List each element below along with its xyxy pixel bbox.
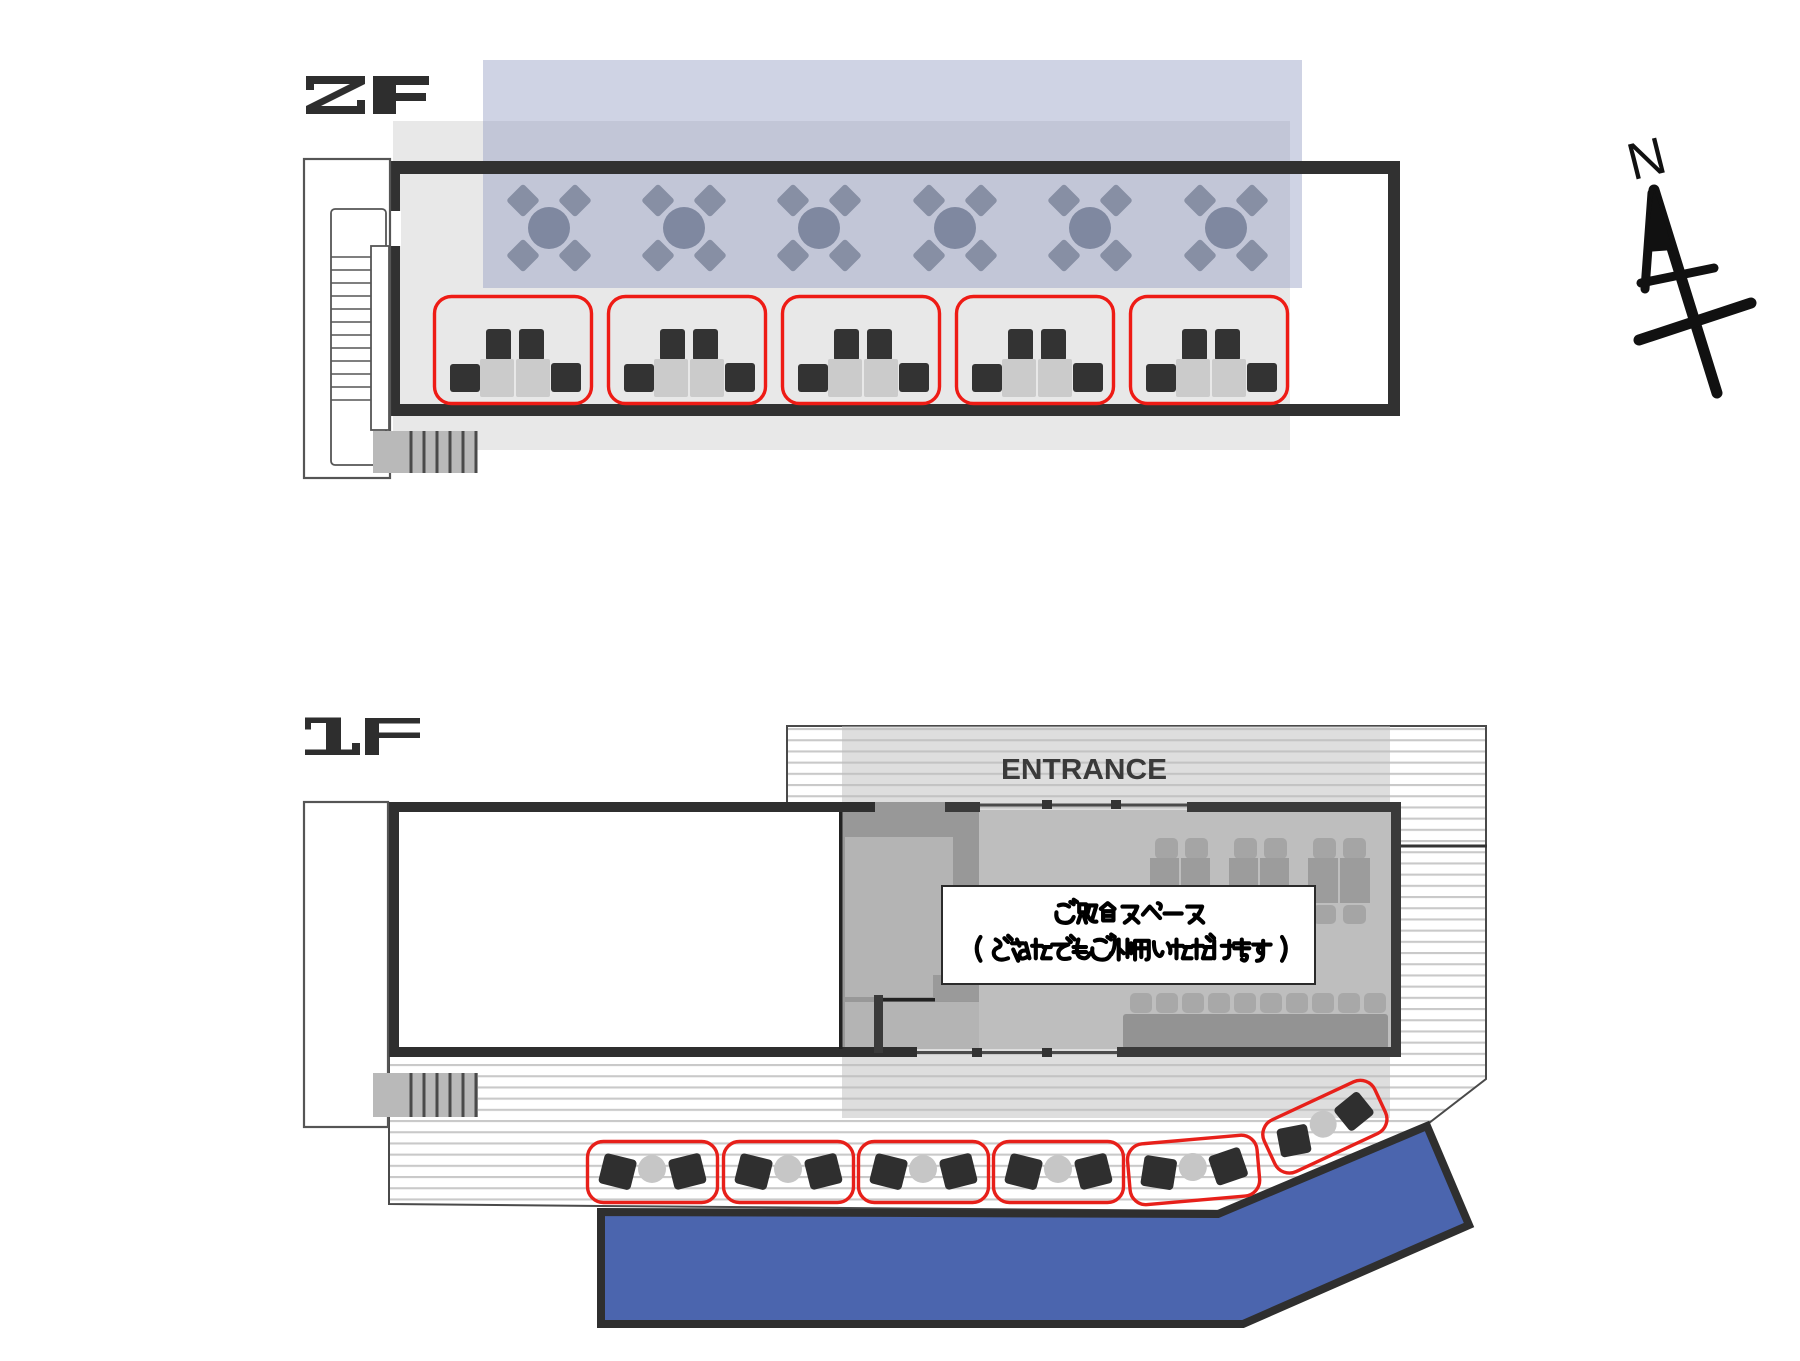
- svg-text:N: N: [1621, 127, 1671, 192]
- svg-text:ENTRANCE: ENTRANCE: [1001, 754, 1167, 786]
